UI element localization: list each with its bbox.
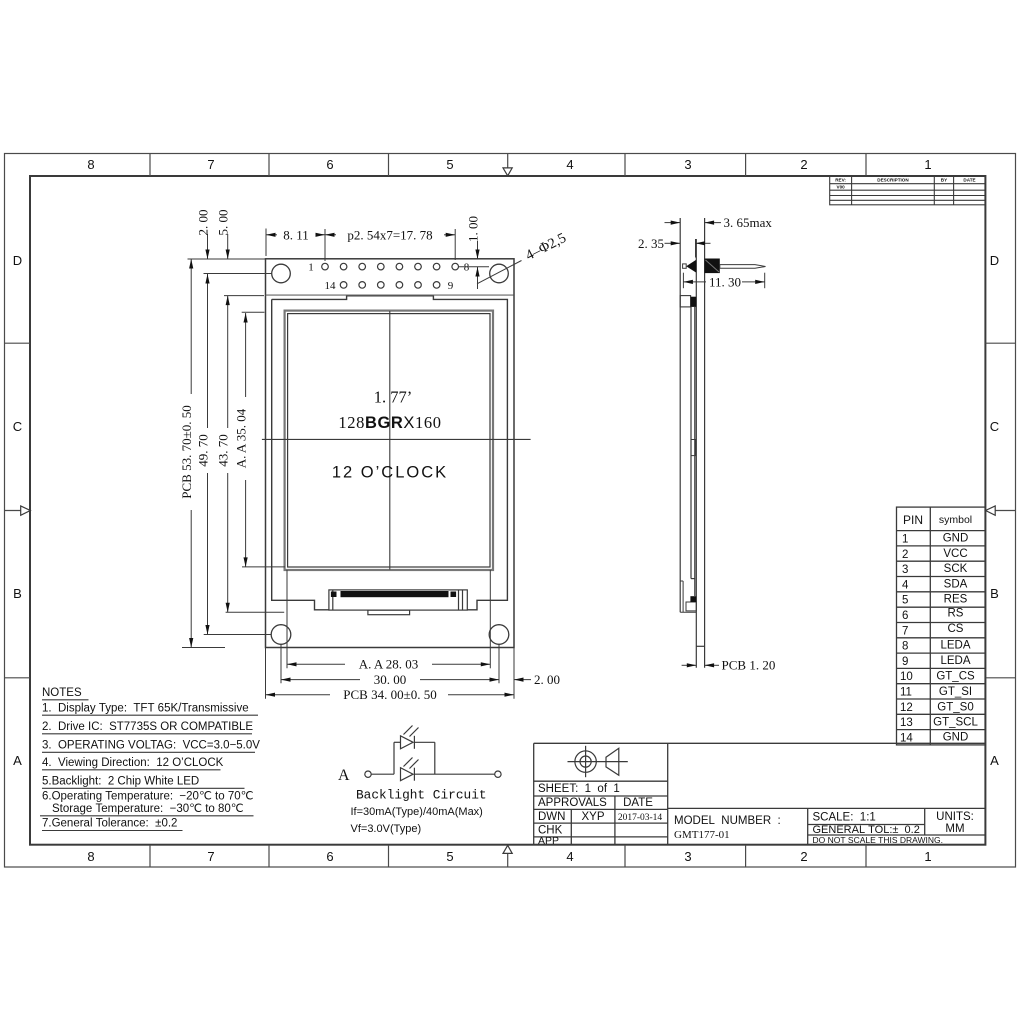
svg-text:B: B bbox=[990, 586, 999, 601]
svg-text:LEDA: LEDA bbox=[940, 655, 970, 667]
svg-text:DESCRIPTION: DESCRIPTION bbox=[877, 178, 909, 183]
svg-text:VCC: VCC bbox=[943, 548, 967, 560]
svg-text:7: 7 bbox=[207, 157, 214, 172]
svg-text:6: 6 bbox=[902, 610, 908, 622]
svg-text:MM: MM bbox=[945, 823, 964, 835]
svg-text:49. 70: 49. 70 bbox=[196, 434, 211, 467]
svg-text:2: 2 bbox=[902, 549, 908, 561]
svg-text:Backlight Circuit: Backlight Circuit bbox=[356, 788, 487, 803]
svg-text:6: 6 bbox=[326, 157, 333, 172]
svg-text:1. 77’: 1. 77’ bbox=[374, 388, 413, 407]
svg-text:9: 9 bbox=[902, 656, 908, 668]
svg-text:8: 8 bbox=[87, 157, 94, 172]
svg-text:C: C bbox=[13, 419, 22, 434]
svg-text:GT_SI: GT_SI bbox=[939, 686, 972, 698]
svg-text:7: 7 bbox=[207, 849, 214, 864]
svg-text:A: A bbox=[990, 753, 999, 768]
svg-text:2: 2 bbox=[800, 849, 807, 864]
svg-text:CS: CS bbox=[948, 623, 964, 635]
svg-text:1: 1 bbox=[924, 157, 931, 172]
svg-text:Vf=3.0V(Type): Vf=3.0V(Type) bbox=[351, 823, 422, 835]
svg-text:GT_S0: GT_S0 bbox=[937, 701, 973, 713]
svg-text:8: 8 bbox=[464, 262, 470, 274]
svg-text:GT_CS: GT_CS bbox=[936, 671, 975, 683]
svg-text:12: 12 bbox=[900, 702, 913, 714]
svg-text:4: 4 bbox=[566, 157, 573, 172]
svg-text:6: 6 bbox=[326, 849, 333, 864]
svg-text:DWN: DWN bbox=[538, 811, 565, 823]
svg-text:12 O’CLOCK: 12 O’CLOCK bbox=[332, 464, 448, 482]
svg-text:1: 1 bbox=[308, 262, 314, 274]
svg-text:UNITS:: UNITS: bbox=[936, 811, 974, 823]
svg-text:13: 13 bbox=[900, 717, 913, 729]
svg-text:10: 10 bbox=[900, 671, 913, 683]
svg-text:14: 14 bbox=[900, 732, 913, 744]
svg-text:GT_SCL: GT_SCL bbox=[933, 717, 978, 729]
svg-text:SCALE: 1:1: SCALE: 1:1 bbox=[813, 812, 876, 824]
svg-text:RS: RS bbox=[948, 608, 964, 620]
svg-text:14: 14 bbox=[325, 280, 337, 292]
svg-text:1. Display Type: TFT 65K/Tra: 1. Display Type: TFT 65K/Transmissive bbox=[42, 702, 249, 714]
svg-text:APP: APP bbox=[538, 835, 559, 847]
svg-text:XYP: XYP bbox=[581, 811, 604, 823]
svg-text:128BGRX160: 128BGRX160 bbox=[338, 413, 441, 432]
svg-text:2. 00: 2. 00 bbox=[534, 672, 560, 687]
svg-text:p2. 54x7=17. 78: p2. 54x7=17. 78 bbox=[347, 227, 432, 242]
svg-text:5. 00: 5. 00 bbox=[216, 210, 231, 236]
svg-text:7.General Tolerance: ±0.2: 7.General Tolerance: ±0.2 bbox=[42, 818, 177, 830]
svg-text:8. 11: 8. 11 bbox=[283, 227, 309, 242]
svg-text:SCK: SCK bbox=[944, 563, 968, 575]
svg-text:C: C bbox=[990, 419, 999, 434]
svg-text:Storage Temperature: −30℃ to: Storage Temperature: −30℃ to 80℃ bbox=[52, 803, 244, 815]
svg-text:DATE: DATE bbox=[623, 797, 653, 809]
svg-text:3: 3 bbox=[684, 157, 691, 172]
svg-text:43. 70: 43. 70 bbox=[216, 434, 231, 467]
svg-text:GND: GND bbox=[943, 731, 969, 743]
svg-text:1: 1 bbox=[924, 849, 931, 864]
svg-text:PCB 53. 70±0. 50: PCB 53. 70±0. 50 bbox=[179, 405, 194, 498]
svg-text:6.Operating Temperature: −20℃: 6.Operating Temperature: −20℃ to 70℃ bbox=[42, 790, 254, 802]
svg-text:7: 7 bbox=[902, 625, 908, 637]
svg-text:5: 5 bbox=[446, 849, 453, 864]
svg-text:2017-03-14: 2017-03-14 bbox=[618, 813, 663, 823]
svg-text:GMT177-01: GMT177-01 bbox=[674, 829, 730, 841]
svg-text:V00: V00 bbox=[837, 185, 846, 190]
svg-text:3. OPERATING VOLTAG: VCC=3.0: 3. OPERATING VOLTAG: VCC=3.0−5.0V bbox=[42, 740, 260, 752]
svg-text:8: 8 bbox=[87, 849, 94, 864]
svg-text:DO NOT SCALE THIS DRAWING.: DO NOT SCALE THIS DRAWING. bbox=[813, 835, 944, 845]
svg-text:2. 00: 2. 00 bbox=[196, 210, 211, 236]
svg-text:MODEL NUMBER :: MODEL NUMBER : bbox=[674, 815, 781, 827]
svg-text:9: 9 bbox=[448, 280, 454, 292]
svg-text:4: 4 bbox=[566, 849, 573, 864]
svg-text:SHEET: 1 of 1: SHEET: 1 of 1 bbox=[538, 783, 620, 795]
svg-text:1. 00: 1. 00 bbox=[466, 216, 481, 242]
svg-text:BY: BY bbox=[941, 178, 947, 183]
svg-text:3: 3 bbox=[902, 564, 908, 576]
svg-text:2: 2 bbox=[800, 157, 807, 172]
svg-text:REV:: REV: bbox=[835, 178, 846, 183]
svg-text:5: 5 bbox=[446, 157, 453, 172]
svg-text:GND: GND bbox=[943, 533, 969, 545]
svg-text:3: 3 bbox=[684, 849, 691, 864]
svg-text:If=30mA(Type)/40mA(Max): If=30mA(Type)/40mA(Max) bbox=[351, 806, 483, 818]
svg-text:4: 4 bbox=[902, 579, 909, 591]
svg-text:LEDA: LEDA bbox=[940, 640, 970, 652]
svg-text:4. Viewing Direction: 12 O’C: 4. Viewing Direction: 12 O’CLOCK bbox=[42, 757, 224, 769]
svg-text:8: 8 bbox=[902, 641, 908, 653]
svg-text:11: 11 bbox=[900, 687, 912, 699]
svg-text:A: A bbox=[338, 767, 350, 784]
svg-text:NOTES: NOTES bbox=[42, 687, 82, 699]
svg-text:PCB 1. 20: PCB 1. 20 bbox=[722, 658, 776, 673]
svg-text:B: B bbox=[13, 586, 22, 601]
svg-text:GENERAL TOL:± 0.2: GENERAL TOL:± 0.2 bbox=[813, 824, 920, 836]
svg-text:5: 5 bbox=[902, 595, 908, 607]
svg-text:D: D bbox=[13, 253, 22, 268]
svg-text:PCB 34. 00±0. 50: PCB 34. 00±0. 50 bbox=[343, 687, 436, 702]
svg-text:A: A bbox=[13, 753, 22, 768]
svg-text:SDA: SDA bbox=[944, 578, 968, 590]
svg-text:symbol: symbol bbox=[939, 514, 972, 526]
svg-text:1: 1 bbox=[902, 534, 908, 546]
svg-text:RES: RES bbox=[944, 594, 968, 606]
svg-text:D: D bbox=[990, 253, 999, 268]
svg-text:APPROVALS: APPROVALS bbox=[538, 797, 607, 809]
svg-text:11. 30: 11. 30 bbox=[709, 274, 741, 289]
svg-text:30. 00: 30. 00 bbox=[374, 672, 407, 687]
svg-text:DATE: DATE bbox=[963, 178, 975, 183]
svg-text:2. Drive IC: ST7735S OR COMP: 2. Drive IC: ST7735S OR COMPATIBLE bbox=[42, 721, 253, 733]
svg-text:A. A 35. 04: A. A 35. 04 bbox=[234, 408, 249, 468]
svg-text:2. 35: 2. 35 bbox=[638, 236, 664, 251]
svg-text:5.Backlight: 2 Chip White LED: 5.Backlight: 2 Chip White LED bbox=[42, 776, 199, 788]
svg-text:3. 65max: 3. 65max bbox=[724, 215, 773, 230]
svg-text:A. A 28. 03: A. A 28. 03 bbox=[359, 657, 419, 672]
svg-text:PIN: PIN bbox=[903, 513, 923, 527]
